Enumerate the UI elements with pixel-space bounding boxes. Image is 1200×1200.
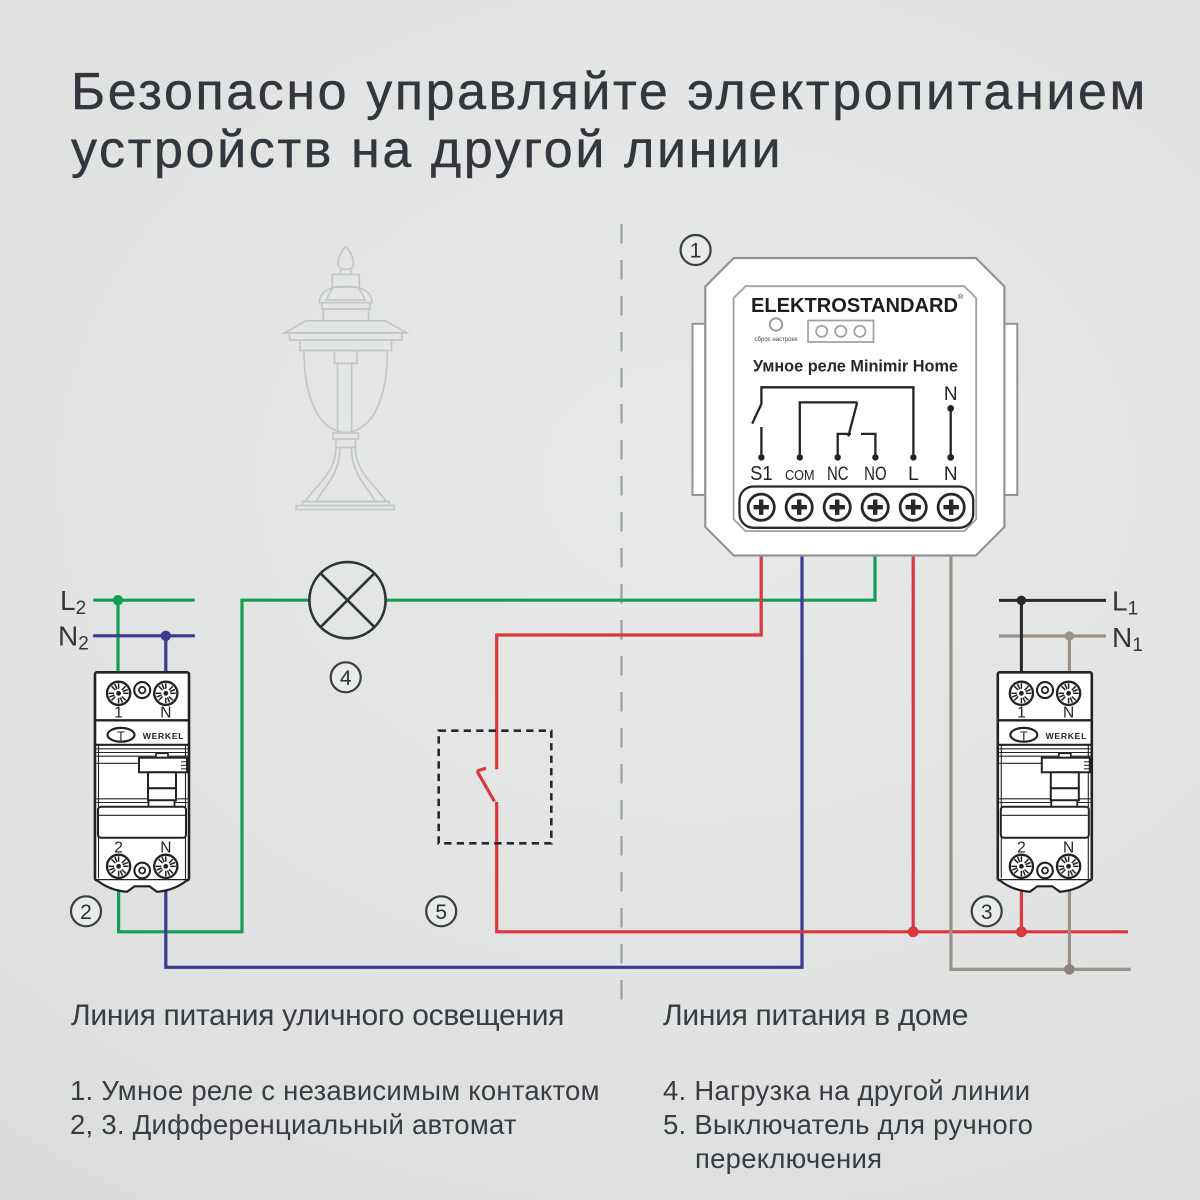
svg-text:®: ® bbox=[958, 293, 964, 301]
svg-text:L2: L2 bbox=[60, 585, 86, 619]
svg-text:S1: S1 bbox=[750, 463, 773, 485]
svg-text:4: 4 bbox=[340, 667, 352, 690]
svg-text:COM: COM bbox=[785, 467, 815, 484]
svg-text:N1: N1 bbox=[1112, 622, 1143, 656]
svg-text:переключения: переключения bbox=[695, 1143, 882, 1174]
svg-text:сброс настроек: сброс настроек bbox=[755, 335, 798, 343]
svg-text:5. Выключатель для ручного: 5. Выключатель для ручного bbox=[663, 1109, 1033, 1140]
svg-text:Умное реле Minimir Home: Умное реле Minimir Home bbox=[753, 357, 958, 376]
svg-text:L1: L1 bbox=[1112, 586, 1138, 620]
svg-text:3: 3 bbox=[981, 901, 993, 924]
svg-text:L: L bbox=[908, 463, 919, 485]
svg-text:Линия питания в доме: Линия питания в доме bbox=[663, 999, 968, 1032]
svg-text:5: 5 bbox=[435, 901, 447, 924]
svg-text:1: 1 bbox=[690, 240, 702, 263]
svg-text:NO: NO bbox=[864, 463, 887, 485]
svg-text:N2: N2 bbox=[58, 621, 89, 655]
svg-text:1. Умное реле с независимым ко: 1. Умное реле с независимым контактом bbox=[70, 1075, 600, 1106]
svg-text:2, 3. Дифференциальный автомат: 2, 3. Дифференциальный автомат bbox=[70, 1109, 517, 1140]
svg-text:2: 2 bbox=[80, 901, 92, 924]
svg-text:Линия питания уличного освещен: Линия питания уличного освещения bbox=[71, 999, 564, 1032]
svg-text:4. Нагрузка на другой линии: 4. Нагрузка на другой линии bbox=[663, 1075, 1030, 1106]
svg-text:N: N bbox=[944, 464, 958, 485]
svg-text:N: N bbox=[944, 384, 958, 405]
svg-text:ELEKTROSTANDARD: ELEKTROSTANDARD bbox=[751, 294, 958, 317]
svg-text:NC: NC bbox=[827, 463, 849, 485]
